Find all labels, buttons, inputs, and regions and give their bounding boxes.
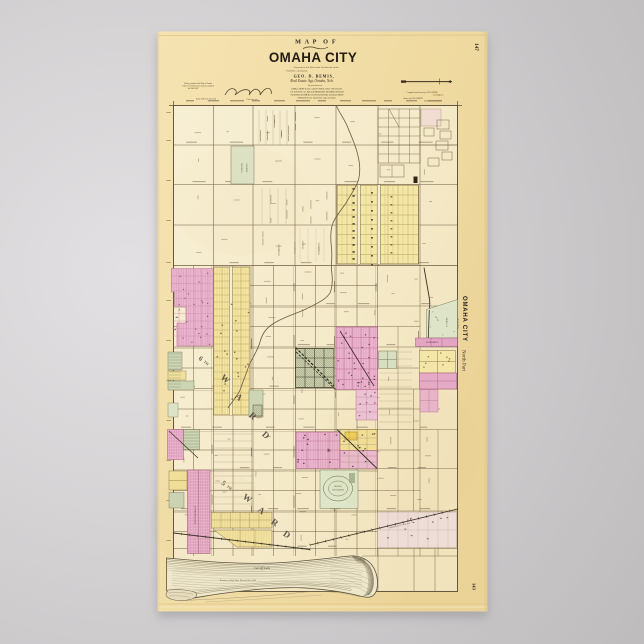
svg-text:147: 147: [473, 43, 479, 51]
svg-text:Gr: Gr: [435, 317, 438, 319]
svg-text:Cut Off Lake: Cut Off Lake: [254, 566, 271, 570]
svg-text:OMAHA CITY: OMAHA CITY: [269, 50, 357, 65]
svg-text:Jan 20th 1887: Jan 20th 1887: [188, 88, 199, 90]
svg-text:Boundary of High Water Missour: Boundary of High Water Missouri River 18…: [220, 579, 257, 582]
svg-text:Having examined the Map of Oma: Having examined the Map of Omaha: [184, 82, 212, 85]
svg-text:S.P. DAVIS & CO., BELL & MOUR: S.P. DAVIS & CO., BELL & MOURTON, MARKER…: [290, 91, 344, 94]
svg-text:Prepared for this Work under t: Prepared for this Work under the directi…: [293, 66, 339, 69]
svg-text:drawn by GEO. SMITH: drawn by GEO. SMITH: [403, 98, 423, 100]
svg-text:By permission of: By permission of: [308, 84, 322, 87]
svg-text:M A P O F: M A P O F: [295, 39, 337, 46]
svg-text:E. V. SMITHS: E. V. SMITHS: [447, 317, 449, 326]
svg-text:Omaha Belt Ry: Omaha Belt Ry: [457, 318, 459, 329]
svg-text:Scale 600 ft to the inch: Scale 600 ft to the inch: [196, 98, 217, 101]
svg-text:SEATORO & HIMERS, JEANS & SHI: SEATORO & HIMERS, JEANS & SHIARD, BALLOU…: [291, 94, 345, 97]
svg-text:KIRKA, BENT & CO., GEO H SWEE: KIRKA, BENT & CO., GEO H SWEE, JOS L. MC…: [292, 88, 343, 91]
svg-text:143: 143: [472, 583, 477, 591]
svg-text:PHILLBS & CO., Real Estate Ag: PHILLBS & CO., Real Estate Agts and othe…: [298, 96, 337, 99]
svg-text:Civil Engineer: Civil Engineer: [433, 93, 444, 96]
svg-text:North Part: North Part: [461, 350, 466, 372]
svg-text:OMAHA CITY: OMAHA CITY: [461, 296, 467, 342]
svg-text:I find it carefully and accura: I find it carefully and accurately compi…: [182, 85, 214, 88]
svg-text:GEO. D. BEMIS,: GEO. D. BEMIS,: [294, 74, 335, 79]
svg-text:W. BRADLEY: W. BRADLEY: [426, 341, 439, 344]
svg-text:Publishers, directed by: Publishers, directed by: [285, 70, 308, 73]
